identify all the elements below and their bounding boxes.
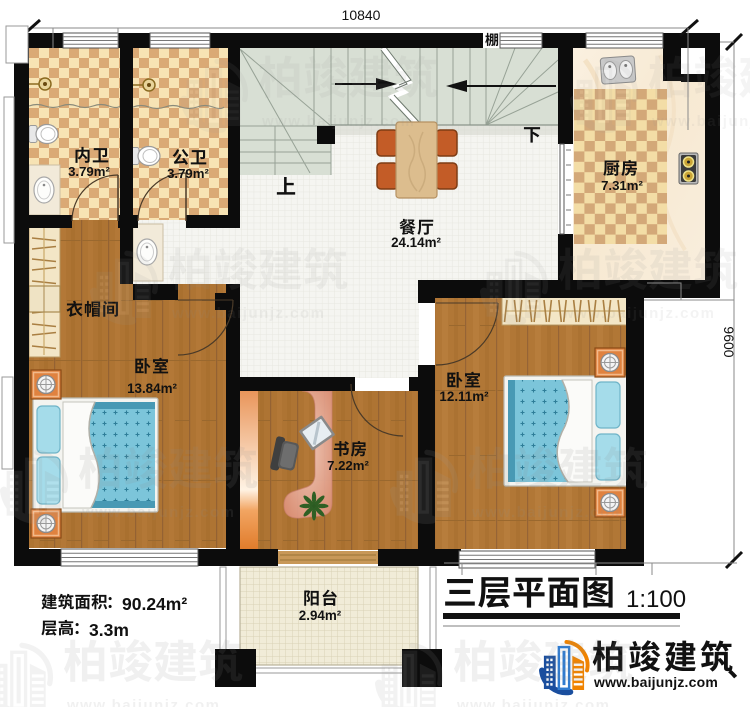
svg-text:24.14m²: 24.14m² — [391, 235, 441, 250]
svg-text:www.baijunjz.com: www.baijunjz.com — [456, 697, 610, 707]
svg-text:www.baijunjz.com: www.baijunjz.com — [471, 504, 625, 521]
svg-text:www.baijunjz.com: www.baijunjz.com — [261, 113, 415, 130]
svg-text:3.79m²: 3.79m² — [68, 164, 110, 179]
svg-text:3.3m: 3.3m — [89, 620, 129, 640]
svg-text:2.94m²: 2.94m² — [299, 608, 342, 623]
svg-text:13.84m²: 13.84m² — [127, 381, 177, 396]
svg-text:www.baijunjz.com: www.baijunjz.com — [171, 305, 325, 322]
svg-text:90.24m²: 90.24m² — [122, 594, 187, 614]
svg-text:12.11m²: 12.11m² — [439, 389, 489, 404]
svg-text:3.79m²: 3.79m² — [167, 166, 209, 181]
svg-text:www.baijunjz.com: www.baijunjz.com — [561, 305, 715, 322]
svg-text:10840: 10840 — [342, 7, 381, 23]
svg-text:1:100: 1:100 — [626, 586, 686, 613]
svg-text:7.22m²: 7.22m² — [327, 458, 369, 473]
svg-text:7.31m²: 7.31m² — [601, 178, 643, 193]
svg-text:www.baijunjz.com: www.baijunjz.com — [81, 504, 235, 521]
svg-text:www.baijunjz.com: www.baijunjz.com — [651, 113, 750, 130]
svg-text:9600: 9600 — [721, 326, 737, 357]
svg-text:www.baijunjz.com: www.baijunjz.com — [66, 697, 220, 707]
svg-text:www.baijunjz.com: www.baijunjz.com — [593, 674, 718, 690]
